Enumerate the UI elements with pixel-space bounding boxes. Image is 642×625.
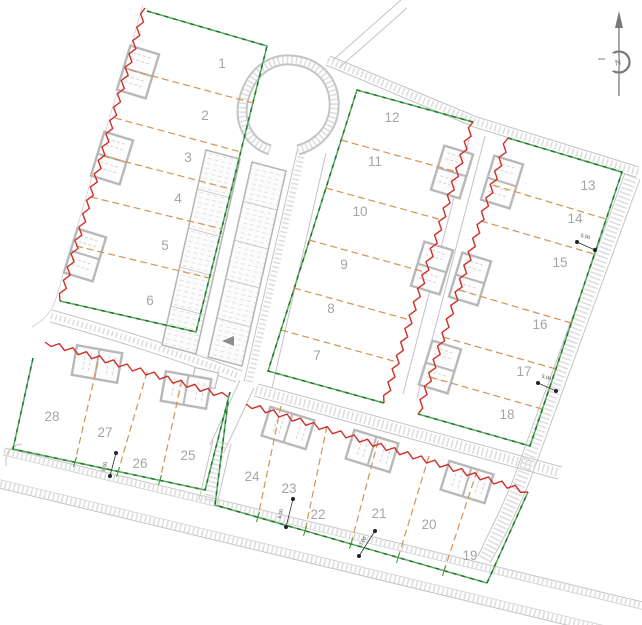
north-label: N	[614, 58, 621, 68]
svg-text:5.00: 5.00	[101, 461, 109, 472]
lot-label-28: 28	[44, 409, 59, 424]
lot-label-2: 2	[201, 108, 209, 123]
lot-label-9: 9	[340, 257, 348, 272]
lot-label-14: 14	[567, 211, 583, 226]
site-plan-page: 1 2 3 4 5 6 7 8 9 10 11 12 13 14 15 16 1…	[0, 0, 642, 625]
lot-label-12: 12	[384, 110, 399, 125]
lot-label-24: 24	[244, 469, 260, 484]
road-bottom-main	[0, 444, 642, 625]
lot-label-13: 13	[580, 178, 595, 193]
north-arrow: N	[598, 11, 630, 96]
lot-label-18: 18	[499, 407, 514, 422]
lot-label-8: 8	[327, 301, 335, 316]
lot-label-19: 19	[462, 548, 477, 563]
lot-label-22: 22	[310, 507, 325, 522]
lot-label-25: 25	[180, 448, 195, 463]
lot-label-27: 27	[97, 425, 112, 440]
svg-text:5.00: 5.00	[580, 233, 591, 242]
dimension-southwest: 5.00	[101, 451, 118, 478]
lot-label-6: 6	[146, 293, 154, 308]
cul-de-sac-turning-head	[242, 60, 334, 150]
lot-label-3: 3	[184, 150, 192, 165]
lot-label-26: 26	[132, 456, 147, 471]
road-east	[478, 173, 640, 563]
central-buildings	[162, 150, 286, 388]
north-arrow-head	[615, 11, 623, 28]
lot-label-16: 16	[532, 317, 547, 332]
lot-label-17: 17	[516, 364, 531, 379]
lot-label-4: 4	[174, 191, 182, 206]
lot-label-11: 11	[368, 154, 382, 169]
svg-text:5.00: 5.00	[277, 508, 285, 519]
road-spur-north	[333, 0, 407, 68]
garage-blocks	[64, 46, 523, 503]
svg-text:5.00: 5.00	[541, 374, 552, 383]
lot-label-15: 15	[552, 255, 567, 270]
plot-boundaries-green	[13, 11, 622, 583]
site-plan-drawing: 1 2 3 4 5 6 7 8 9 10 11 12 13 14 15 16 1…	[0, 0, 642, 625]
lot-label-20: 20	[421, 517, 436, 532]
lot-label-1: 1	[218, 56, 226, 71]
lot-label-7: 7	[313, 348, 321, 363]
lot-label-23: 23	[281, 481, 296, 496]
lot-label-10: 10	[352, 204, 367, 219]
lot-label-21: 21	[371, 506, 386, 521]
lot-label-5: 5	[161, 238, 169, 253]
